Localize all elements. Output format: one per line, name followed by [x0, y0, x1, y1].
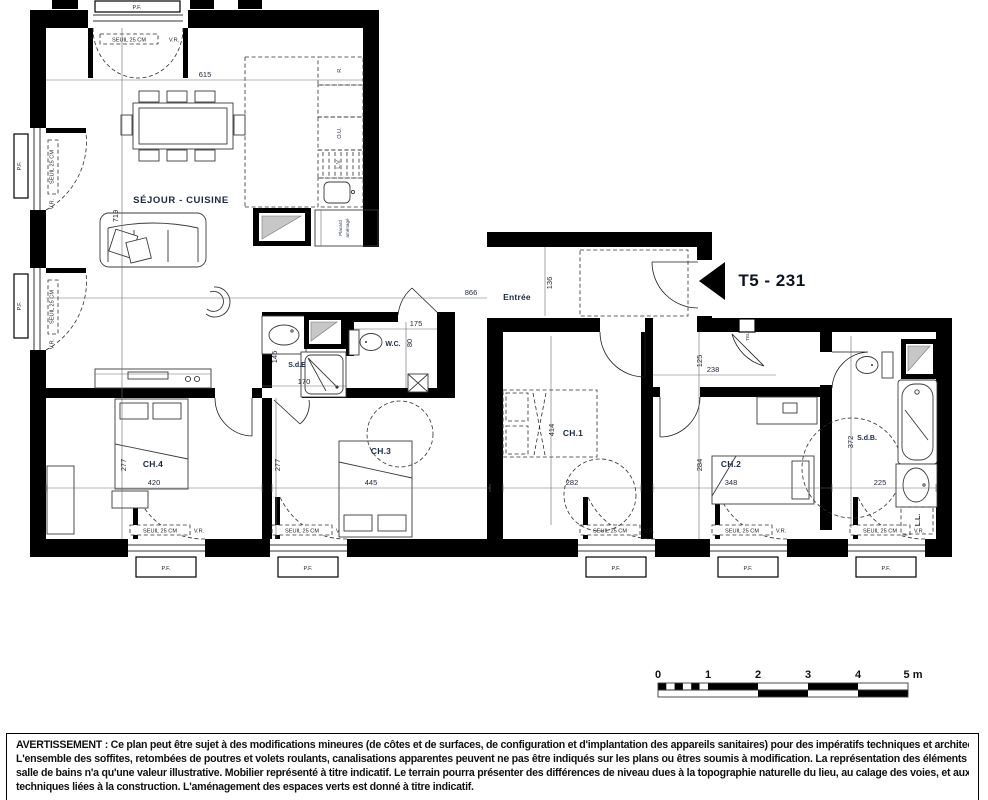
duct-sdb-icon	[901, 339, 938, 379]
scale-tick-1: 1	[705, 669, 711, 681]
unit-label: T5 - 231	[738, 271, 805, 290]
vr-label: V.R.	[776, 529, 787, 535]
dim-175: 175	[410, 319, 423, 328]
duct-sde-icon	[304, 315, 346, 349]
room-label-wc: W.C.	[385, 341, 400, 348]
seuil-label: SEUIL 25 CM	[725, 529, 759, 535]
window-bottom-sdb: SEUIL 25 CM V.R. P.F.	[848, 497, 925, 577]
window-left2-vr-label: V.R.	[50, 338, 56, 349]
dim-225: 225	[874, 478, 887, 487]
room-label-ch4: CH.4	[143, 459, 163, 469]
turning-circle-ch1	[564, 459, 636, 531]
tel-label: TEL.	[745, 331, 750, 341]
window-bottom-ch4: SEUIL 25 CM V.R. P.F.	[128, 497, 205, 577]
window-top: P.F. SEUIL 25 CM V.R.	[88, 1, 188, 78]
toilet-wc-icon	[349, 330, 382, 355]
dishwasher-label: L.V.	[336, 159, 342, 169]
pf-label: P.F.	[612, 566, 621, 572]
pf-label: P.F.	[162, 566, 171, 572]
oven-label: O.U.	[337, 127, 343, 139]
washbasin-sde-icon	[262, 316, 306, 354]
wardrobe-ch2	[757, 397, 817, 424]
room-label-entree: Entrée	[503, 292, 531, 302]
dim-277-ch3: 277	[273, 459, 282, 472]
duct-wc-icon	[408, 374, 428, 392]
dim-238: 238	[707, 365, 720, 374]
floor-plan-page: P.F. SEUIL 25 CM V.R. P.F. SEUIL 25 CM V…	[0, 0, 988, 800]
sideboard	[95, 369, 211, 388]
disclaimer-box: AVERTISSEMENT : Ce plan peut être sujet …	[6, 733, 979, 800]
scale-tick-4: 4	[855, 669, 862, 681]
dim-80: 80	[405, 339, 414, 347]
disclaimer-line-3: salle de bains n'a qu'une valeur illustr…	[16, 766, 969, 780]
dim-284: 284	[695, 459, 704, 472]
turning-circle-sdb	[802, 418, 902, 518]
disclaimer-line-1: AVERTISSEMENT : Ce plan peut être sujet …	[16, 738, 969, 752]
room-label-sdb: S.d.B.	[857, 435, 877, 442]
window-top-pf-label: P.F.	[133, 5, 142, 11]
disclaimer-line-4: techniques liées à la construction. L'am…	[16, 780, 969, 794]
seuil-label: SEUIL 25 CM	[285, 529, 319, 535]
placard-label-2: aménagé	[345, 218, 350, 238]
dining-table	[121, 91, 245, 161]
disclaimer-line-2: L'ensemble des soffites, retombées de po…	[16, 752, 969, 766]
closet-ch1-dashed	[503, 390, 597, 457]
scale-tick-5: 5 m	[904, 669, 923, 681]
bed-ch4	[115, 399, 188, 489]
seuil-label: SEUIL 25 CM	[593, 529, 627, 535]
dim-170: 170	[298, 377, 311, 386]
furniture	[47, 91, 902, 537]
toilet-sdb-icon	[856, 352, 893, 378]
dim-136: 136	[545, 277, 554, 290]
dim-372: 372	[846, 436, 855, 449]
window-left1-pf-label: P.F.	[17, 161, 23, 170]
window-top-seuil-label: SEUIL 25 CM	[112, 38, 146, 44]
window-left-2: P.F. SEUIL 25 CM V.R.	[14, 268, 86, 350]
seuil-label: SEUIL 25 CM	[143, 529, 177, 535]
closet-entree-dashed	[580, 250, 688, 316]
window-top-vr-label: V.R.	[169, 38, 180, 44]
scale-tick-0: 0	[655, 669, 661, 681]
window-left2-pf-label: P.F.	[17, 301, 23, 310]
window-left1-seuil-label: SEUIL 25 CM	[50, 150, 56, 184]
duct-kitchen-icon	[253, 208, 311, 246]
bathtub-icon	[898, 380, 937, 464]
dim-348: 348	[725, 478, 738, 487]
dim-615: 615	[199, 70, 212, 79]
dim-866: 866	[465, 288, 478, 297]
washbasin-sdb-icon	[896, 464, 937, 507]
door-ch4	[215, 398, 252, 436]
kitchen-units: R. O.U. L.V. Placard aménagé	[245, 57, 378, 246]
pf-label: P.F.	[882, 566, 891, 572]
dim-282: 282	[566, 478, 579, 487]
tel-niche: TEL.	[739, 319, 755, 341]
dim-414: 414	[547, 424, 556, 437]
dim-125: 125	[695, 355, 704, 368]
room-label-ch3: CH.3	[371, 446, 391, 456]
room-label-ch2: CH.2	[721, 459, 741, 469]
pf-label: P.F.	[744, 566, 753, 572]
window-left1-vr-label: V.R.	[50, 198, 56, 209]
armchair	[206, 287, 230, 317]
dim-719: 719	[111, 210, 120, 223]
scale-tick-2: 2	[755, 669, 761, 681]
vr-label: V.R.	[194, 529, 205, 535]
room-label-ch1: CH.1	[563, 428, 583, 438]
scale-tick-3: 3	[805, 669, 811, 681]
scale-bar: 0 1 2 3 4 5 m	[655, 669, 923, 697]
door-ch3	[274, 400, 309, 424]
dim-277-ch4: 277	[119, 459, 128, 472]
pf-label: P.F.	[304, 566, 313, 572]
door-ch1	[600, 332, 645, 377]
fridge-label: R.	[337, 67, 343, 73]
ll-label: L.L.	[915, 514, 922, 526]
kitchen-sink-icon	[324, 182, 355, 203]
dim-145: 145	[270, 351, 279, 364]
placard-label-1: Placard	[338, 220, 343, 236]
floor-plan-drawing: P.F. SEUIL 25 CM V.R. P.F. SEUIL 25 CM V…	[0, 0, 988, 728]
window-left2-seuil-label: SEUIL 25 CM	[50, 290, 56, 324]
dim-420: 420	[148, 478, 161, 487]
door-ch2	[660, 397, 700, 437]
entry-arrow	[699, 262, 725, 300]
window-bottom-ch3: SEUIL 25 CM V.R. P.F.	[270, 497, 347, 577]
nightstand-ch4	[112, 491, 148, 508]
window-bottom-ch2: SEUIL 25 CM V.R. P.F.	[710, 497, 787, 577]
dim-445: 445	[365, 478, 378, 487]
entry-door	[652, 262, 698, 308]
room-label-sde: S.d.E	[288, 362, 306, 369]
window-left-1: P.F. SEUIL 25 CM V.R.	[14, 128, 86, 210]
room-label-sejour: SÉJOUR - CUISINE	[133, 195, 229, 206]
vr-label: V.R.	[644, 529, 655, 535]
seuil-label: SEUIL 25 CM	[863, 529, 897, 535]
door-wc	[398, 288, 440, 315]
shower-icon	[301, 352, 346, 397]
wardrobe-ch4	[47, 466, 74, 534]
